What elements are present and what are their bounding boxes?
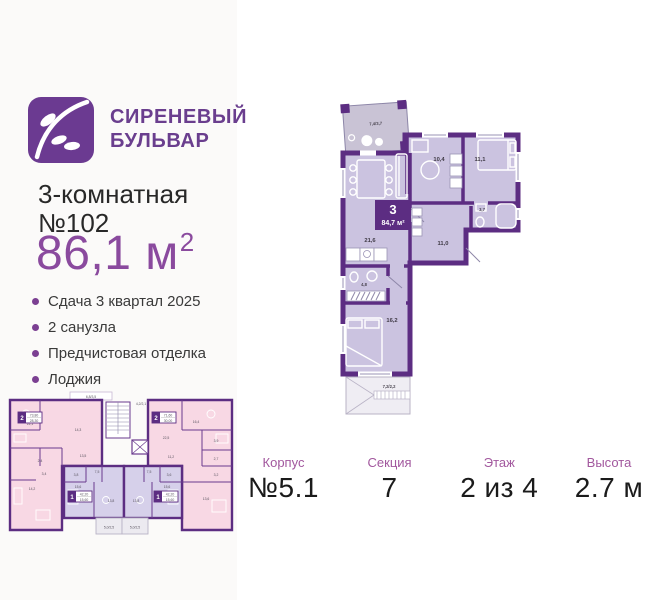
stairs-icon — [106, 402, 130, 438]
balcony-left-label: 6,8/3,5 — [86, 395, 96, 399]
apartment-floor-plan: 7,4/3,7 — [330, 96, 525, 430]
logo-mark — [28, 97, 94, 163]
terrace-bottom: 7,2/2,2 — [346, 377, 410, 414]
hallway-label: 11,0 — [438, 241, 449, 247]
balcony-right-label: 4,2/2,1 — [136, 402, 146, 406]
brand-name-line1: СИРЕНЕВЫЙ — [110, 106, 247, 130]
badge-living: 30,00 — [164, 419, 173, 423]
details-row: Корпус №5.1 Секция 7 Этаж 2 из 4 Высота … — [248, 455, 644, 504]
badge-area: 84,7 м² — [381, 220, 405, 227]
room-label: 14,2 — [29, 487, 36, 491]
detail-value: 7 — [355, 472, 425, 504]
bullet-icon — [32, 350, 39, 357]
room-label: 13,6 — [203, 497, 210, 501]
feature-item-loggia: Лоджия — [32, 366, 206, 392]
radiator-icon — [347, 291, 385, 301]
apartment-badge-left: 2 73,80 28,30 — [18, 412, 42, 423]
badge-rooms: 3 — [389, 202, 396, 217]
feature-text: Сдача 3 квартал 2025 — [48, 293, 200, 310]
feature-list: Сдача 3 квартал 2025 2 санузла Предчисто… — [32, 288, 206, 392]
room-label: 7,5 — [95, 470, 100, 474]
detail-label: Высота — [574, 455, 644, 470]
room-label: 3,9 — [214, 439, 219, 443]
bathroom-label: 4,8 — [361, 282, 367, 287]
room-label: 2,4 — [38, 459, 43, 463]
bullet-icon — [32, 324, 39, 331]
detail-value: №5.1 — [248, 472, 319, 504]
loggia-left-label: 5,0/2,5 — [104, 526, 114, 530]
living-label: 21,6 — [364, 238, 376, 244]
room-label: 15,6 — [75, 485, 82, 489]
room-label: 15,6 — [164, 485, 171, 489]
feature-item-finish: Предчистовая отделка — [32, 340, 206, 366]
detail-value: 2.7 м — [574, 472, 644, 504]
terrace-label: 7,2/2,2 — [383, 384, 396, 389]
badge-total: 42,20 — [80, 493, 89, 497]
room-label: 22,5 — [163, 436, 170, 440]
plan-badge: 3 84,7 м² — [375, 200, 411, 230]
bullet-icon — [32, 376, 39, 383]
detail-height: Высота 2.7 м — [574, 455, 644, 504]
apartment-badge-bottom-left: 1 42,20 15,60 — [68, 491, 92, 502]
apartment-rooms-text: 3-комнатная — [38, 180, 188, 209]
listing-flyer: СИРЕНЕВЫЙ БУЛЬВАР 3-комнатная №102 86,1 … — [0, 0, 662, 600]
bath-small-label: 3,7 — [479, 207, 485, 212]
loggia-top: 7,4/3,7 — [340, 100, 409, 154]
bullet-icon — [32, 298, 39, 305]
badge-total: 42,20 — [166, 493, 175, 497]
feature-text: Лоджия — [48, 371, 101, 388]
badge-living: 15,60 — [80, 498, 89, 502]
apartment-badge-right: 2 71,60 30,00 — [152, 412, 176, 423]
bedroom2-label: 16,2 — [386, 318, 397, 324]
room-label: 13,8 — [133, 499, 140, 503]
badge-total: 71,60 — [164, 414, 173, 418]
brand-name-line2: БУЛЬВАР — [110, 130, 247, 154]
feature-item-completion: Сдача 3 квартал 2025 — [32, 288, 206, 314]
apartment-area: 86,1 м2 — [36, 226, 195, 281]
elevator-icon — [132, 440, 148, 454]
feature-text: Предчистовая отделка — [48, 345, 206, 362]
brand-logo: СИРЕНЕВЫЙ БУЛЬВАР — [28, 97, 247, 163]
area-superscript: 2 — [180, 227, 195, 257]
room-label: 3,2 — [214, 473, 219, 477]
room-label: 3,6 — [167, 473, 172, 477]
badge-total: 73,80 — [30, 414, 39, 418]
room-label: 2,7 — [214, 457, 219, 461]
detail-section: Секция 7 — [355, 455, 425, 504]
room-label: 14,3 — [75, 428, 82, 432]
badge-living: 15,60 — [166, 498, 175, 502]
room-label: 11,2 — [168, 455, 174, 459]
detail-building: Корпус №5.1 — [248, 455, 319, 504]
loggia-right-label: 5,0/2,5 — [130, 526, 140, 530]
room-label: 13,5 — [80, 454, 87, 458]
detail-label: Корпус — [248, 455, 319, 470]
loggia-top-label: 7,4/3,7 — [369, 121, 383, 127]
room-label: 3,4 — [42, 472, 47, 476]
feature-text: 2 санузла — [48, 319, 116, 336]
bottom-loggias: 5,0/2,5 5,0/2,5 — [96, 518, 148, 534]
detail-floor: Этаж 2 из 4 — [460, 455, 538, 504]
logo-branch-icon — [28, 97, 94, 163]
brand-name: СИРЕНЕВЫЙ БУЛЬВАР — [110, 106, 247, 153]
detail-value: 2 из 4 — [460, 472, 538, 504]
room-label: 7,5 — [147, 470, 152, 474]
bedroom1-label: 11,1 — [475, 157, 487, 163]
building-section-plan: 6,8/3,5 — [6, 390, 236, 560]
room-label: 13,8 — [108, 499, 115, 503]
room-label: 3,8 — [74, 473, 79, 477]
area-value: 86,1 м — [36, 227, 179, 280]
apartment-badge-bottom-right: 1 42,20 15,60 — [154, 491, 178, 502]
badge-living: 28,30 — [30, 419, 39, 423]
detail-label: Секция — [355, 455, 425, 470]
room-label: 16,4 — [193, 420, 200, 424]
kitchen-label: 10,4 — [433, 157, 445, 163]
detail-label: Этаж — [460, 455, 538, 470]
feature-item-bathrooms: 2 санузла — [32, 314, 206, 340]
